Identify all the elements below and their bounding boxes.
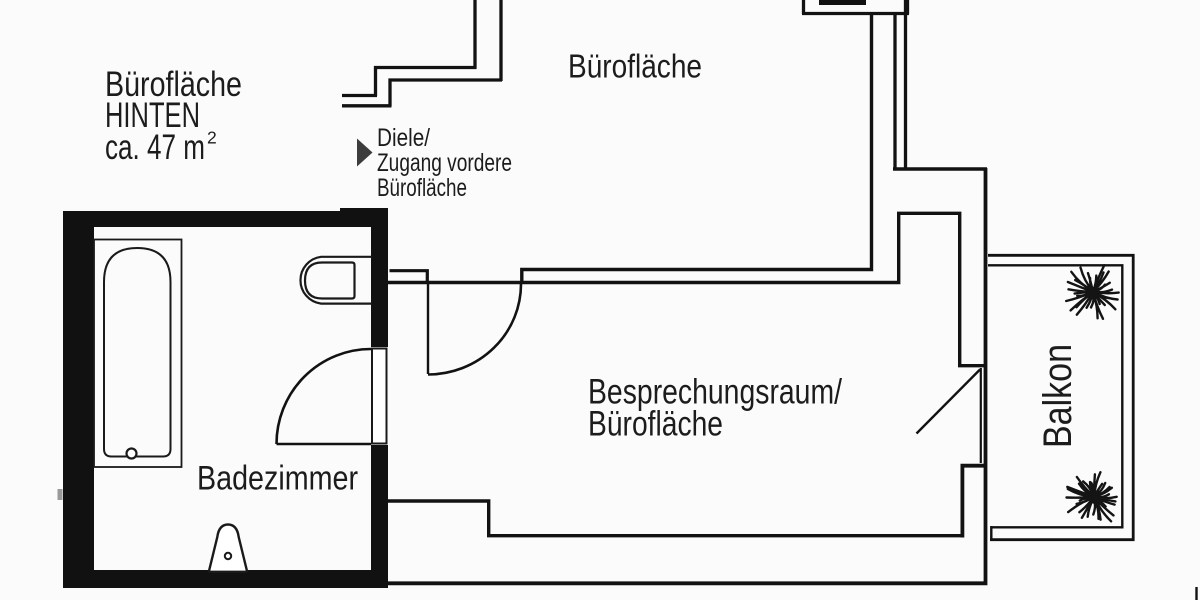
svg-text:Bürofläche: Bürofläche — [377, 174, 467, 202]
svg-text:2: 2 — [207, 128, 217, 148]
svg-text:ca. 47 m: ca. 47 m — [105, 128, 205, 167]
svg-text:Bürofläche: Bürofläche — [568, 48, 702, 85]
svg-text:Zugang vordere: Zugang vordere — [377, 149, 512, 177]
svg-text:Balkon: Balkon — [1036, 344, 1080, 448]
svg-text:Badezimmer: Badezimmer — [197, 460, 358, 498]
svg-text:Bürofläche: Bürofläche — [588, 405, 723, 444]
svg-text:Diele/: Diele/ — [377, 124, 430, 152]
